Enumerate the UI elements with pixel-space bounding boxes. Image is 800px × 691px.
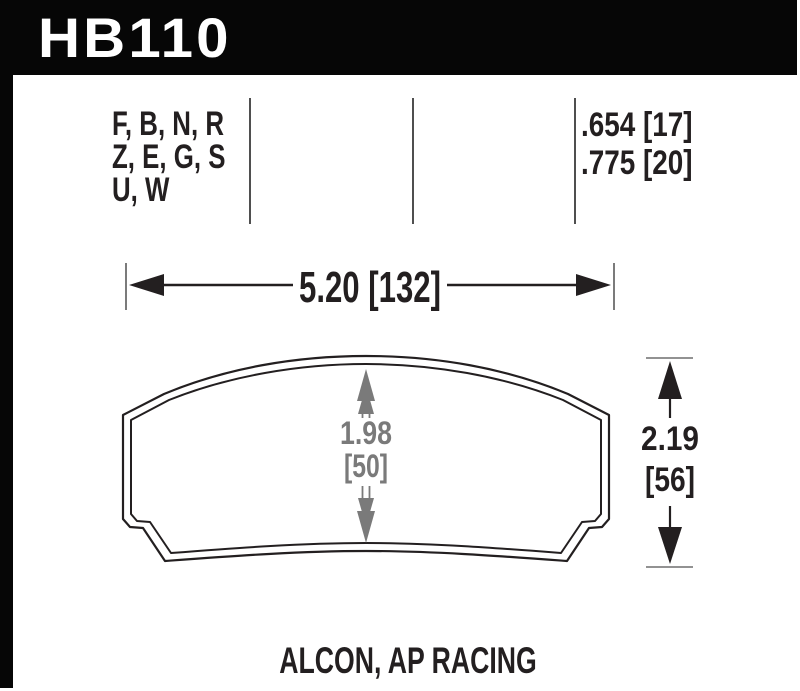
overall-height-value: 2.19 [641, 420, 699, 458]
center-height-value: 1.98 [340, 415, 392, 451]
center-height-arrow-down-icon [357, 511, 375, 543]
overall-height-arrow-down-icon [658, 527, 682, 564]
center-height-mm: [50] [344, 448, 388, 484]
width-dimension-arrow-left-icon [129, 274, 164, 296]
brake-pad-drawing: 5.20 [132] 1.98 [50] 2.19 [56] [0, 0, 800, 691]
width-dimension: 5.20 [132] [126, 263, 614, 312]
footer-applications: ALCON, AP RACING [124, 644, 693, 678]
width-dimension-label: 5.20 [132] [299, 263, 441, 312]
overall-height-dimension: 2.19 [56] [641, 358, 699, 567]
overall-height-mm: [56] [645, 461, 695, 499]
overall-height-arrow-up-icon [658, 361, 682, 399]
width-dimension-arrow-right-icon [576, 274, 611, 296]
center-height-dimension: 1.98 [50] [340, 369, 392, 543]
